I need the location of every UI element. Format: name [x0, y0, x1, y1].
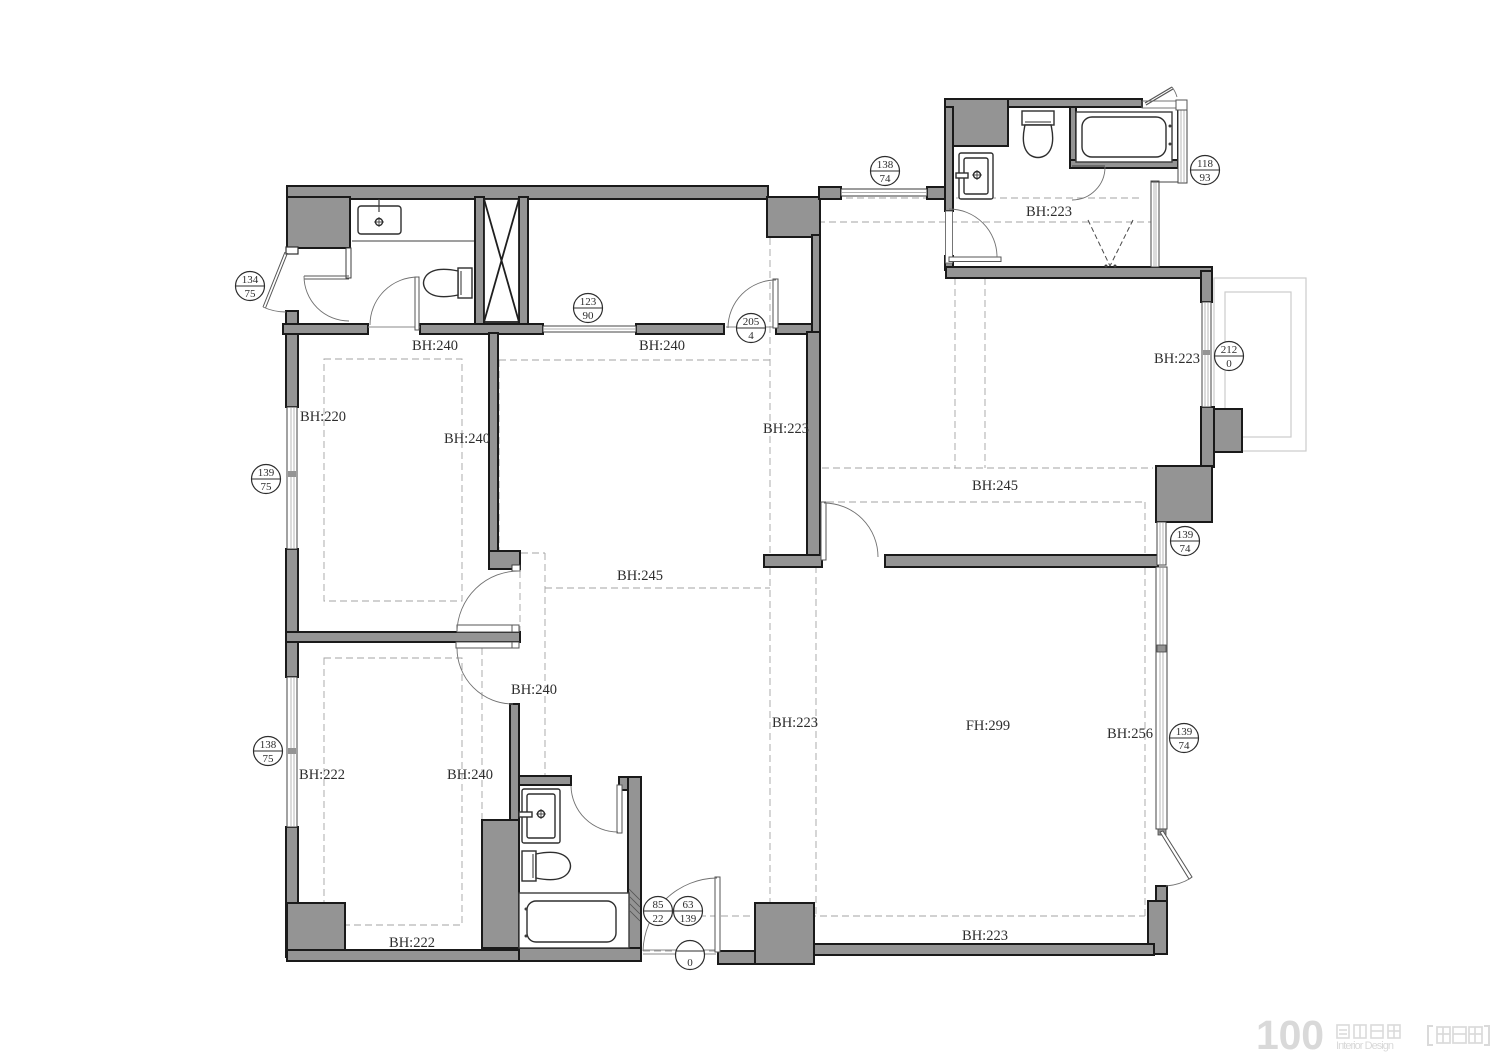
svg-text:139: 139 [680, 913, 697, 925]
svg-text:BH:240: BH:240 [444, 431, 490, 447]
svg-text:BH:240: BH:240 [639, 338, 685, 354]
svg-text:BH:223: BH:223 [962, 928, 1008, 944]
svg-text:0: 0 [687, 957, 693, 969]
svg-text:BH:256: BH:256 [1107, 726, 1153, 742]
svg-text:205: 205 [743, 316, 760, 328]
svg-text:BH:222: BH:222 [299, 767, 345, 783]
svg-text:BH:223: BH:223 [1026, 204, 1072, 220]
svg-text:118: 118 [1197, 158, 1214, 170]
svg-text:0: 0 [1226, 358, 1232, 370]
svg-text:Interior Design: Interior Design [1336, 1040, 1394, 1052]
svg-text:FH:299: FH:299 [966, 718, 1010, 734]
svg-text:22: 22 [653, 913, 664, 925]
svg-text:BH:245: BH:245 [972, 478, 1018, 494]
svg-text:212: 212 [1221, 344, 1238, 356]
svg-text:BH:223: BH:223 [772, 715, 818, 731]
svg-text:BH:240: BH:240 [412, 338, 458, 354]
svg-text:75: 75 [261, 481, 273, 493]
svg-text:74: 74 [1180, 543, 1192, 555]
svg-text:BH:240: BH:240 [511, 682, 557, 698]
svg-text:123: 123 [580, 296, 597, 308]
svg-text:100: 100 [1256, 1012, 1324, 1058]
svg-text:63: 63 [683, 899, 695, 911]
svg-text:138: 138 [260, 739, 277, 751]
svg-text:139: 139 [258, 467, 275, 479]
svg-text:BH:223: BH:223 [1154, 351, 1200, 367]
svg-text:BH:220: BH:220 [300, 409, 346, 425]
svg-text:4: 4 [748, 330, 754, 342]
svg-text:85: 85 [653, 899, 665, 911]
svg-text:74: 74 [1179, 740, 1191, 752]
svg-text:75: 75 [245, 288, 257, 300]
svg-text:74: 74 [880, 173, 892, 185]
svg-text:93: 93 [1200, 172, 1212, 184]
svg-text:134: 134 [242, 274, 259, 286]
svg-text:90: 90 [583, 310, 595, 322]
svg-text:138: 138 [877, 159, 894, 171]
svg-text:139: 139 [1177, 529, 1194, 541]
svg-text:BH:240: BH:240 [447, 767, 493, 783]
svg-text:75: 75 [263, 753, 275, 765]
svg-text:BH:223: BH:223 [763, 421, 809, 437]
svg-text:BH:222: BH:222 [389, 935, 435, 951]
svg-text:BH:245: BH:245 [617, 568, 663, 584]
svg-text:139: 139 [1176, 726, 1193, 738]
